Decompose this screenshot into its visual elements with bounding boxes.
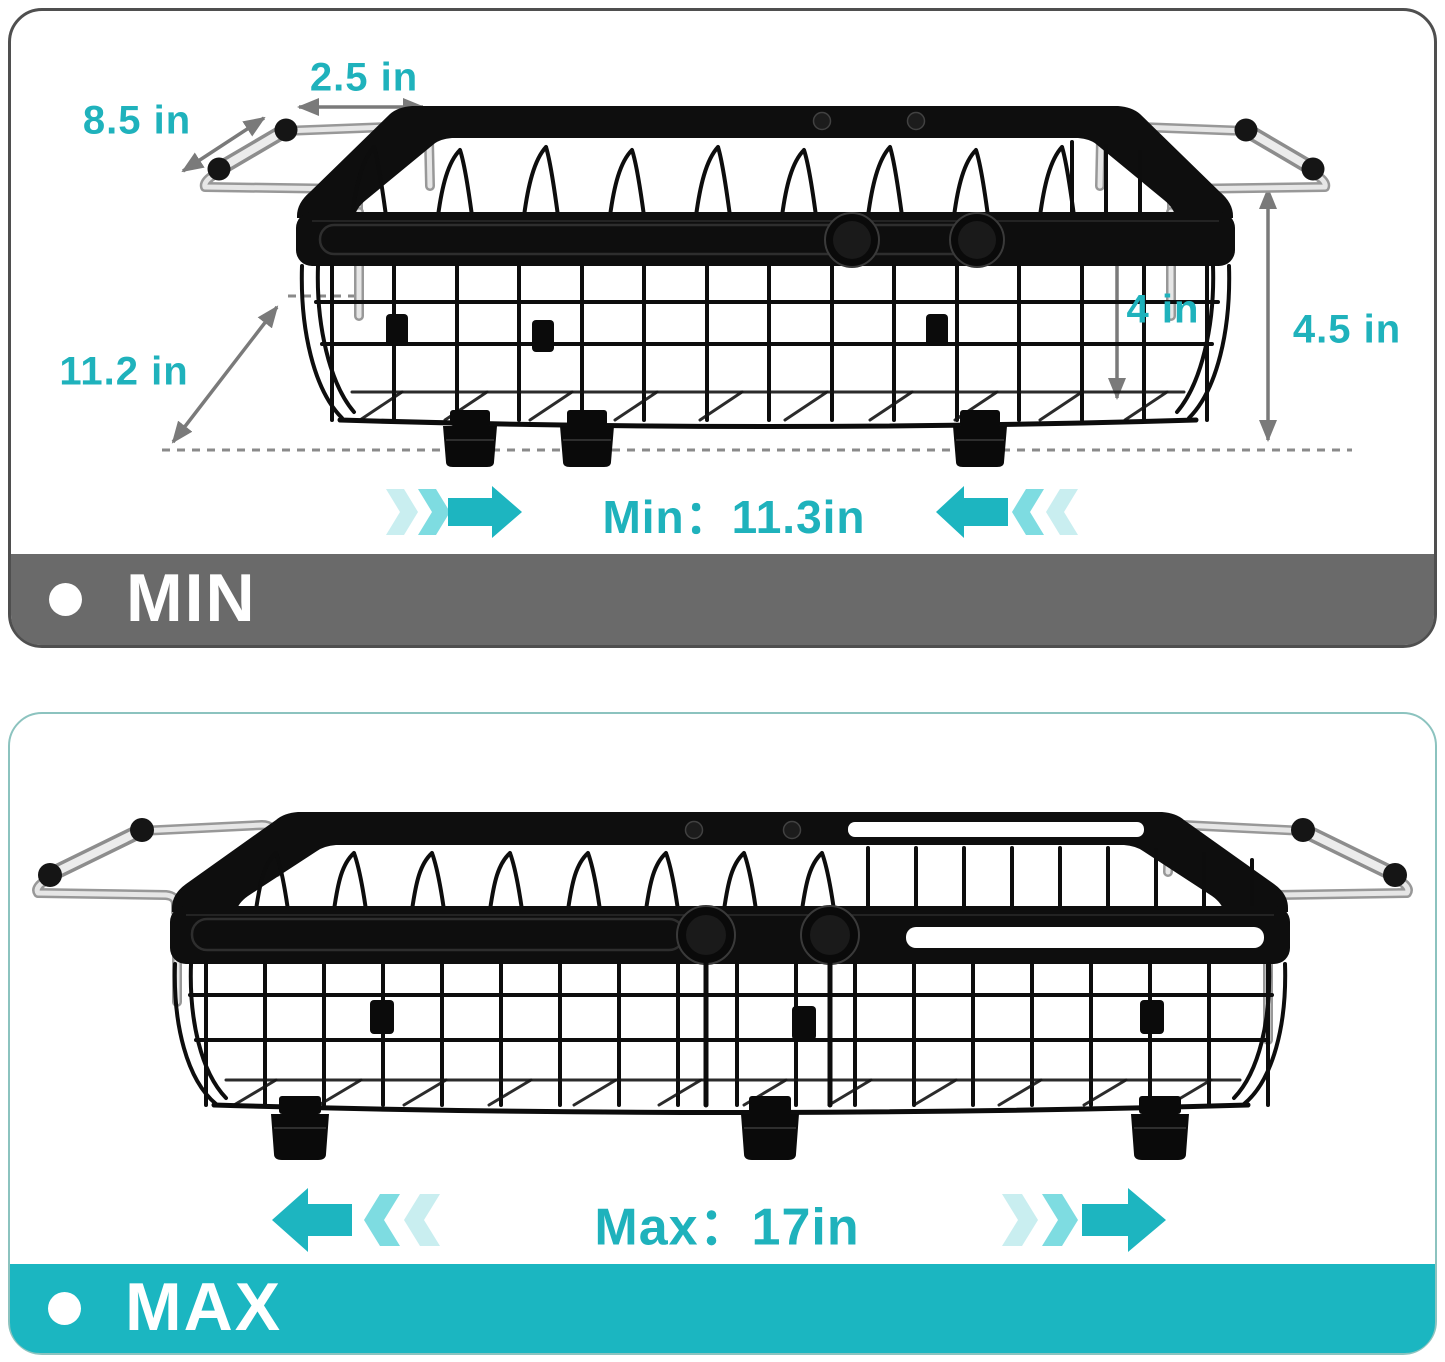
screw-icon [686, 822, 703, 839]
rail-slot [906, 927, 1264, 948]
dim-label-grip-length: 8.5 in [83, 99, 191, 144]
dim-label-extension: 2.5 in [310, 56, 418, 101]
dim-label-basket-depth: 4 in [1127, 288, 1200, 333]
basket-rim [297, 106, 1233, 218]
dim-label-overall-height: 4.5 in [1293, 308, 1401, 353]
feet [443, 410, 1007, 467]
wire-grid [302, 266, 1229, 427]
expand-arrows-max-left [272, 1188, 440, 1252]
max-rack-illustration [37, 812, 1408, 1160]
min-range-label: Min：11.3in [602, 481, 865, 547]
rack-illustrations [0, 0, 1445, 1362]
dim-label-diagonal: 11.2 in [59, 350, 188, 395]
expand-arrows-min-left [386, 486, 522, 538]
wire-grid [175, 962, 1285, 1113]
plate-prongs [256, 848, 1252, 910]
feet [271, 1096, 1189, 1160]
min-rack-illustration [162, 106, 1352, 467]
product-dimension-infographic: MIN MAX [0, 0, 1445, 1362]
front-rail [170, 906, 1290, 964]
screw-icon [814, 113, 831, 130]
screw-icon [908, 113, 925, 130]
rim-slot [848, 822, 1144, 837]
expand-arrows-min-right [936, 486, 1078, 538]
max-range-label: Max：17in [594, 1185, 859, 1260]
screw-icon [784, 822, 801, 839]
expand-arrows-max-right [1002, 1188, 1166, 1252]
plate-prongs [352, 142, 1140, 216]
front-rail [296, 212, 1235, 267]
